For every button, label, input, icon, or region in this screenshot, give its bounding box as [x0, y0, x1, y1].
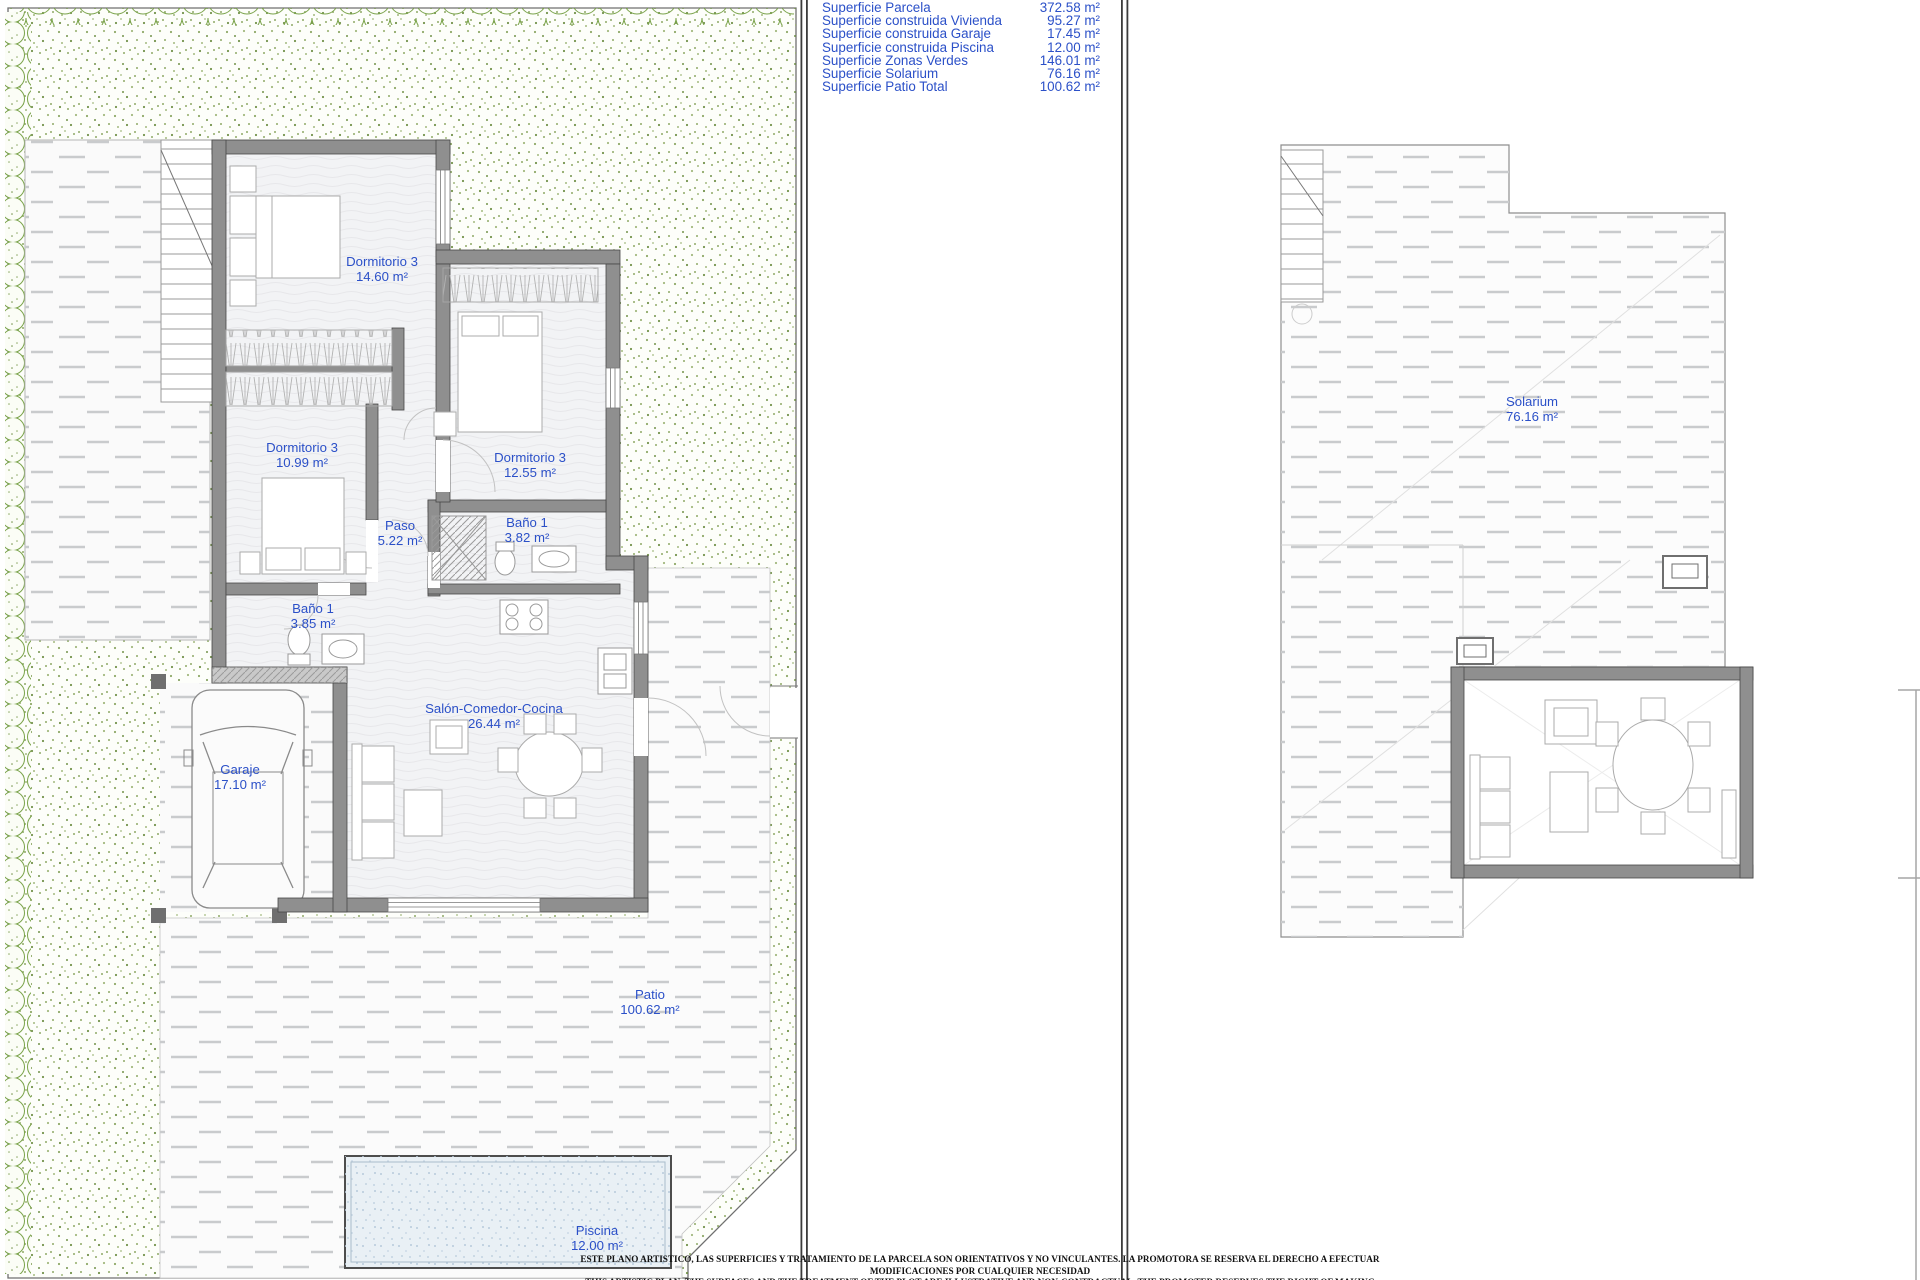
room-area: 17.10 m² — [214, 777, 266, 792]
room-label-dormitorio-3b: Dormitorio 3 10.99 m² — [266, 440, 338, 470]
roof-lounge — [1451, 667, 1753, 878]
floor-plan-page: Superficie Parcela 372.58 m² Superficie … — [0, 0, 1920, 1280]
room-label-bano-1a: Baño 1 3.82 m² — [505, 515, 550, 545]
edge-wall-fragments — [1898, 690, 1920, 1280]
room-area: 14.60 m² — [356, 269, 408, 284]
room-name: Paso — [385, 518, 415, 533]
room-name: Dormitorio 3 — [494, 450, 566, 465]
garage-post — [151, 674, 166, 689]
room-label-garaje: Garaje 17.10 m² — [214, 762, 266, 792]
hedge-top — [10, 8, 794, 25]
legend-value: 100.62 m² — [1040, 80, 1100, 93]
roof-vent-2 — [1457, 638, 1493, 664]
room-name: Garaje — [220, 762, 260, 777]
legend-label: Superficie Patio Total — [822, 80, 948, 93]
room-name: Baño 1 — [506, 515, 548, 530]
room-name: Dormitorio 3 — [346, 254, 418, 269]
room-label-dormitorio-3c: Dormitorio 3 12.55 m² — [494, 450, 566, 480]
room-name: Solarium — [1506, 394, 1558, 409]
section-divider-2 — [1121, 0, 1128, 1280]
room-area: 10.99 m² — [276, 455, 328, 470]
room-area: 12.55 m² — [504, 465, 556, 480]
floor-plan-drawing — [0, 0, 1920, 1280]
legend-row: Superficie construida Garaje 17.45 m² — [822, 27, 1100, 40]
legend-value: 12.00 m² — [1047, 41, 1100, 54]
room-area: 3.82 m² — [505, 530, 550, 545]
roof-stairs — [1281, 150, 1323, 324]
room-area: 12.00 m² — [571, 1238, 623, 1253]
room-name: Salón-Comedor-Cocina — [425, 701, 563, 716]
room-name: Patio — [635, 987, 665, 1002]
room-label-bano-1b: Baño 1 3.85 m² — [291, 601, 336, 631]
room-label-patio: Patio 100.62 m² — [620, 987, 679, 1017]
hatched-wall — [212, 667, 347, 683]
room-name: Dormitorio 3 — [266, 440, 338, 455]
disclaimer: ESTE PLANO ARTISTICO, LAS SUPERFICIES Y … — [575, 1254, 1385, 1280]
room-area: 5.22 m² — [378, 533, 423, 548]
room-label-dormitorio-3a: Dormitorio 3 14.60 m² — [346, 254, 418, 284]
legend-row: Superficie construida Piscina 12.00 m² — [822, 41, 1100, 54]
room-area: 26.44 m² — [468, 716, 520, 731]
roof-vent — [1663, 556, 1707, 588]
surface-legend: Superficie Parcela 372.58 m² Superficie … — [822, 1, 1100, 93]
legend-value: 17.45 m² — [1047, 27, 1100, 40]
legend-row: Superficie Patio Total 100.62 m² — [822, 80, 1100, 93]
room-name: Baño 1 — [292, 601, 334, 616]
room-area: 76.16 m² — [1506, 409, 1558, 424]
exterior-stairs — [161, 140, 213, 402]
section-divider-1 — [801, 0, 808, 1280]
disclaimer-line-es: ESTE PLANO ARTISTICO, LAS SUPERFICIES Y … — [575, 1254, 1385, 1277]
legend-label: Superficie construida Piscina — [822, 41, 994, 54]
room-label-salon: Salón-Comedor-Cocina 26.44 m² — [425, 701, 563, 731]
room-label-piscina: Piscina 12.00 m² — [571, 1223, 623, 1253]
room-area: 100.62 m² — [620, 1002, 679, 1017]
garage-post — [151, 908, 166, 923]
room-name: Piscina — [576, 1223, 619, 1238]
room-area: 3.85 m² — [291, 616, 336, 631]
room-label-solarium: Solarium 76.16 m² — [1506, 394, 1558, 424]
room-label-paso: Paso 5.22 m² — [378, 518, 423, 548]
car-icon — [184, 690, 312, 908]
legend-label: Superficie construida Garaje — [822, 27, 991, 40]
